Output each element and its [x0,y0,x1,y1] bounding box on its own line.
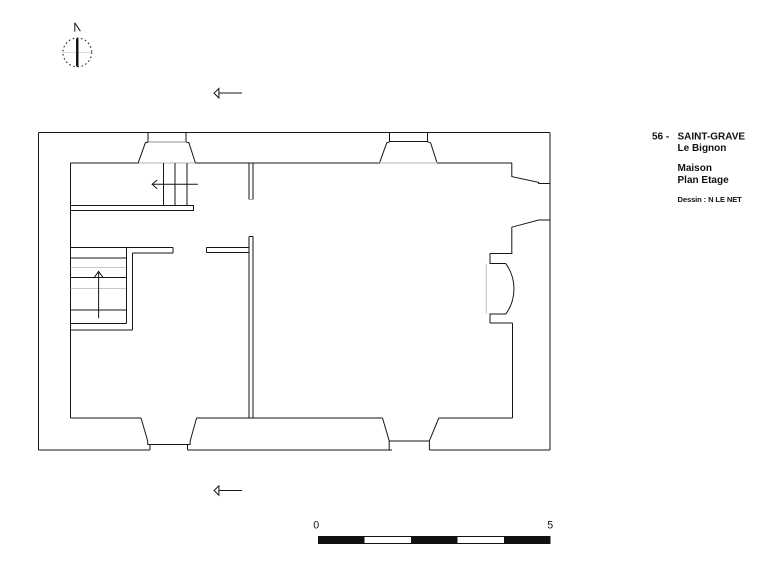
svg-text:Dessin : N LE NET: Dessin : N LE NET [678,195,743,204]
svg-text:0: 0 [313,519,319,531]
svg-text:Plan Etage: Plan Etage [678,175,730,186]
svg-text:Le Bignon: Le Bignon [678,143,727,154]
svg-text:SAINT-GRAVE: SAINT-GRAVE [678,132,746,143]
svg-text:Maison: Maison [678,163,712,174]
svg-text:5: 5 [547,519,553,531]
svg-text:56 -: 56 - [652,132,669,143]
